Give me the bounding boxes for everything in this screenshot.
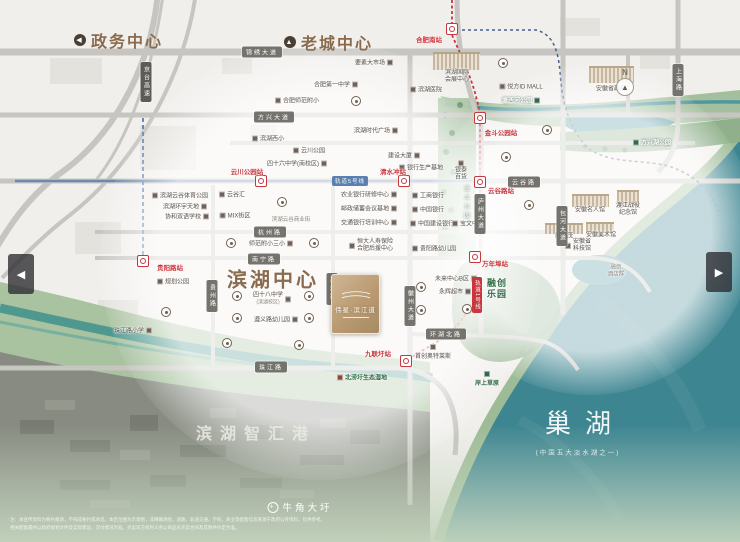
niujiao-polder-label: ✛ 牛角大圩 bbox=[267, 500, 332, 514]
poi-label: 恒大人寿保险合肥后援中心 bbox=[349, 239, 393, 253]
road-label: 方兴大道 bbox=[254, 112, 294, 123]
next-image-button[interactable]: ▶ bbox=[706, 252, 732, 292]
road-label-vertical: 包河大道 bbox=[557, 206, 568, 246]
building-icon bbox=[285, 296, 291, 302]
poi-label: 渡江战役纪念馆 bbox=[616, 203, 640, 217]
location-map: 要素大市场合肥第一中学合肥师范附小滨湖医院悦方ID MALL安徽省政府滨湖国际会… bbox=[0, 0, 740, 542]
community-marker-icon bbox=[309, 238, 319, 248]
poi-label: 滨湖医院 bbox=[410, 85, 442, 94]
community-marker-icon bbox=[351, 96, 361, 106]
compass: N ▲ bbox=[616, 68, 634, 96]
map-disclaimer: 注：本宣传资料为要约邀请，不构成要约或承诺。本区位图为示意图，非精确测绘，道路、… bbox=[10, 516, 340, 531]
station-jindoupark-icon bbox=[474, 112, 486, 124]
community-marker-icon bbox=[226, 238, 236, 248]
building-icon bbox=[412, 192, 418, 198]
building-icon bbox=[534, 97, 540, 103]
road-label-vertical: 京台高速 bbox=[141, 62, 152, 102]
building-icon bbox=[387, 59, 393, 65]
poi-label: 农业银行研修中心 bbox=[341, 190, 397, 199]
poi-label: 中国银行 bbox=[412, 205, 444, 214]
poi-label: 合肥第一中学 bbox=[314, 80, 358, 89]
building-icon bbox=[152, 192, 158, 198]
station-wannianbu-label: 万年埠站 bbox=[482, 258, 508, 268]
poi-label: 中国建设银行 bbox=[410, 219, 454, 228]
park-label: 融创乐园 bbox=[487, 278, 507, 300]
building-icon bbox=[220, 212, 226, 218]
government-center-label: 政务中心 bbox=[91, 28, 163, 52]
metro-line5-pill: 轨道5号线 bbox=[332, 176, 368, 186]
poi-label: 安徽美术馆 bbox=[586, 230, 616, 239]
station-qingshuichong-label: 清水冲站 bbox=[380, 166, 406, 176]
poi-label: 规划公园 bbox=[157, 277, 189, 286]
building-icon bbox=[499, 83, 505, 89]
road-label-vertical: 上海路 bbox=[673, 64, 684, 96]
station-guiyanglu-icon bbox=[137, 255, 149, 267]
next-arrow-icon: ▶ bbox=[715, 266, 723, 279]
station-jindoupark-label: 金斗公园站 bbox=[485, 127, 518, 137]
community-marker-icon bbox=[232, 291, 242, 301]
compass-n-label: N bbox=[622, 68, 628, 77]
building-icon bbox=[201, 203, 207, 209]
zhihui-port-label: 滨湖智汇港 bbox=[196, 420, 316, 444]
poi-label: 工商银行 bbox=[412, 191, 444, 200]
road-label-vertical: 徽州大道 bbox=[405, 286, 416, 326]
disclaimer-line2: 相关配套最终以政府规划文件及实际建设、交付情况为准。买卖双方权利义务以商品房买卖… bbox=[10, 524, 340, 532]
poi-label: 合肥师范附小 bbox=[275, 96, 319, 105]
prev-arrow-icon: ◀ bbox=[17, 268, 25, 281]
road-label: 环湖北路 bbox=[426, 329, 466, 340]
poi-label: 邮政储蓄会议基地 bbox=[341, 204, 397, 213]
poi-label: 要素大市场 bbox=[355, 58, 393, 67]
building-icon bbox=[410, 220, 416, 226]
community-marker-icon bbox=[161, 307, 171, 317]
station-wannianbu-icon bbox=[469, 251, 481, 263]
building-icon bbox=[414, 152, 420, 158]
building-icon bbox=[146, 327, 152, 333]
station-yunchuanpark-label: 云川公园站 bbox=[231, 166, 264, 176]
community-marker-icon bbox=[416, 282, 426, 292]
building-icon bbox=[275, 97, 281, 103]
poi-label: 滨湖云谷体育公园 bbox=[152, 191, 208, 200]
building-icon bbox=[410, 86, 416, 92]
station-qingshuichong-icon bbox=[398, 175, 410, 187]
building-icon bbox=[287, 240, 293, 246]
chaohu-lake-label: 巢湖 (中国五大淡水湖之一) bbox=[531, 404, 625, 457]
poi-label: 四十八中学(滨湖校区) bbox=[253, 292, 291, 305]
road-label-vertical: 庐州大道 bbox=[475, 194, 486, 234]
park-label: 北涝圩生态湿地 bbox=[337, 373, 387, 382]
community-marker-icon bbox=[304, 313, 314, 323]
park-label: 方兴湖公园 bbox=[633, 138, 671, 147]
poi-label: MIX街区 bbox=[220, 211, 251, 220]
building-icon bbox=[219, 191, 225, 197]
poi-label: 云谷汇 bbox=[219, 190, 245, 199]
poi-label: 遵义路幼儿园 bbox=[254, 315, 298, 324]
building-icon bbox=[157, 278, 163, 284]
old-town-center-label: 老城中心 bbox=[301, 30, 373, 54]
building-icon bbox=[484, 371, 490, 377]
poi-label: 首创奥特莱斯 bbox=[415, 344, 451, 360]
building-icon bbox=[391, 191, 397, 197]
park-label: 岸上草原 bbox=[475, 371, 499, 387]
station-guiyanglu-label: 贵阳路站 bbox=[157, 262, 183, 272]
north-arrow-icon: ▲ bbox=[284, 36, 296, 48]
community-marker-icon bbox=[416, 305, 426, 315]
building-icon bbox=[430, 344, 436, 350]
building-icon bbox=[452, 220, 458, 226]
building-icon bbox=[252, 135, 258, 141]
road-label: 珠江路 bbox=[255, 362, 287, 373]
community-marker-icon bbox=[294, 340, 304, 350]
road-label-vertical: 贵州路 bbox=[207, 280, 218, 312]
community-marker-icon bbox=[304, 291, 314, 301]
station-jiulianwei-label: 九联圩站 bbox=[365, 348, 391, 358]
community-marker-icon bbox=[232, 313, 242, 323]
building-icon bbox=[321, 160, 327, 166]
poi-label: 师范附小三小 bbox=[249, 239, 293, 248]
poi-label: 贵阳路幼儿园 bbox=[412, 244, 456, 253]
station-yunchuanpark-icon bbox=[255, 175, 267, 187]
lake-name: 巢湖 bbox=[531, 404, 625, 441]
poi-label: 交通银行培训中心 bbox=[341, 218, 397, 227]
compass-needle-icon: ▲ bbox=[616, 78, 634, 96]
building-icon bbox=[203, 213, 209, 219]
poi-label: 永辉超市 bbox=[439, 287, 471, 296]
station-jiulianwei-icon bbox=[400, 355, 412, 367]
community-marker-icon bbox=[277, 197, 287, 207]
poi-label: 安徽名人馆 bbox=[575, 205, 605, 214]
building-icon bbox=[337, 374, 343, 380]
station-hefeinan-label: 合肥南站 bbox=[416, 34, 442, 44]
poi-label: 银泰百货 bbox=[455, 160, 467, 181]
road-label: 锦绣大道 bbox=[242, 47, 282, 58]
niujiao-icon: ✛ bbox=[267, 502, 278, 513]
road-label: 杭州路 bbox=[254, 227, 286, 238]
poi-label: 悦方ID MALL bbox=[499, 82, 542, 91]
building-icon bbox=[458, 160, 464, 166]
project-name: 伟星·滨江道 bbox=[335, 304, 376, 314]
station-yungulu-label: 云谷路站 bbox=[488, 185, 514, 195]
project-wave-icon bbox=[341, 291, 371, 301]
poi-label: 滨湖国际会展中心 bbox=[445, 70, 469, 84]
poi-label: 建设大厦 bbox=[388, 151, 420, 160]
station-yungulu-icon bbox=[474, 176, 486, 188]
building-icon bbox=[391, 219, 397, 225]
poi-label: 未来中心B区 bbox=[435, 274, 477, 283]
community-marker-icon bbox=[498, 58, 508, 68]
badge-government-center: ◀ 政务中心 bbox=[74, 28, 163, 52]
community-marker-icon bbox=[501, 152, 511, 162]
community-marker-icon bbox=[462, 304, 472, 314]
station-hefeinan-icon bbox=[446, 23, 458, 35]
poi-label: 融创酒店群 bbox=[608, 264, 625, 277]
poi-label: 安徽省科技馆 bbox=[565, 239, 591, 253]
building-icon bbox=[391, 205, 397, 211]
building-icon bbox=[392, 127, 398, 133]
park-label-vertical: 金斗公园 bbox=[462, 185, 471, 221]
poi-label: 滨湖时代广场 bbox=[354, 126, 398, 135]
poi-label: 滨湖环宇天地 bbox=[163, 202, 207, 211]
building-icon bbox=[412, 245, 418, 251]
prev-image-button[interactable]: ◀ bbox=[8, 254, 34, 294]
building-icon bbox=[465, 288, 471, 294]
project-marker[interactable]: 伟星·滨江道 bbox=[331, 274, 380, 334]
community-marker-icon bbox=[542, 125, 552, 135]
park-label: 塘西河公园 bbox=[502, 96, 540, 105]
disclaimer-line1: 注：本宣传资料为要约邀请，不构成要约或承诺。本区位图为示意图，非精确测绘，道路、… bbox=[10, 516, 340, 524]
niujiao-text: 牛角大圩 bbox=[282, 500, 332, 514]
binhu-center-label: 滨湖中心 bbox=[227, 264, 319, 293]
poi-label: 协和双语学校 bbox=[165, 212, 209, 221]
metro-line1-pill: 轨道1号线 bbox=[472, 277, 482, 313]
lake-subtitle: (中国五大淡水湖之一) bbox=[531, 447, 625, 457]
poi-label: 云川公园 bbox=[293, 146, 325, 155]
poi-label: 珠江路小学 bbox=[114, 326, 152, 335]
poi-label: 滨湖西小 bbox=[252, 134, 284, 143]
west-arrow-icon: ◀ bbox=[74, 34, 86, 46]
building-icon bbox=[633, 139, 639, 145]
building-icon bbox=[292, 316, 298, 322]
badge-old-town-center: ▲ 老城中心 bbox=[284, 30, 373, 54]
building-icon bbox=[412, 206, 418, 212]
community-marker-icon bbox=[524, 200, 534, 210]
poi-label: 滨湖云谷商业街 bbox=[272, 215, 311, 223]
building-icon bbox=[352, 81, 358, 87]
project-divider bbox=[343, 317, 369, 318]
poi-label: 四十六中学(南校区) bbox=[267, 159, 327, 168]
building-icon bbox=[293, 147, 299, 153]
building-icon bbox=[349, 243, 355, 249]
community-marker-icon bbox=[222, 338, 232, 348]
